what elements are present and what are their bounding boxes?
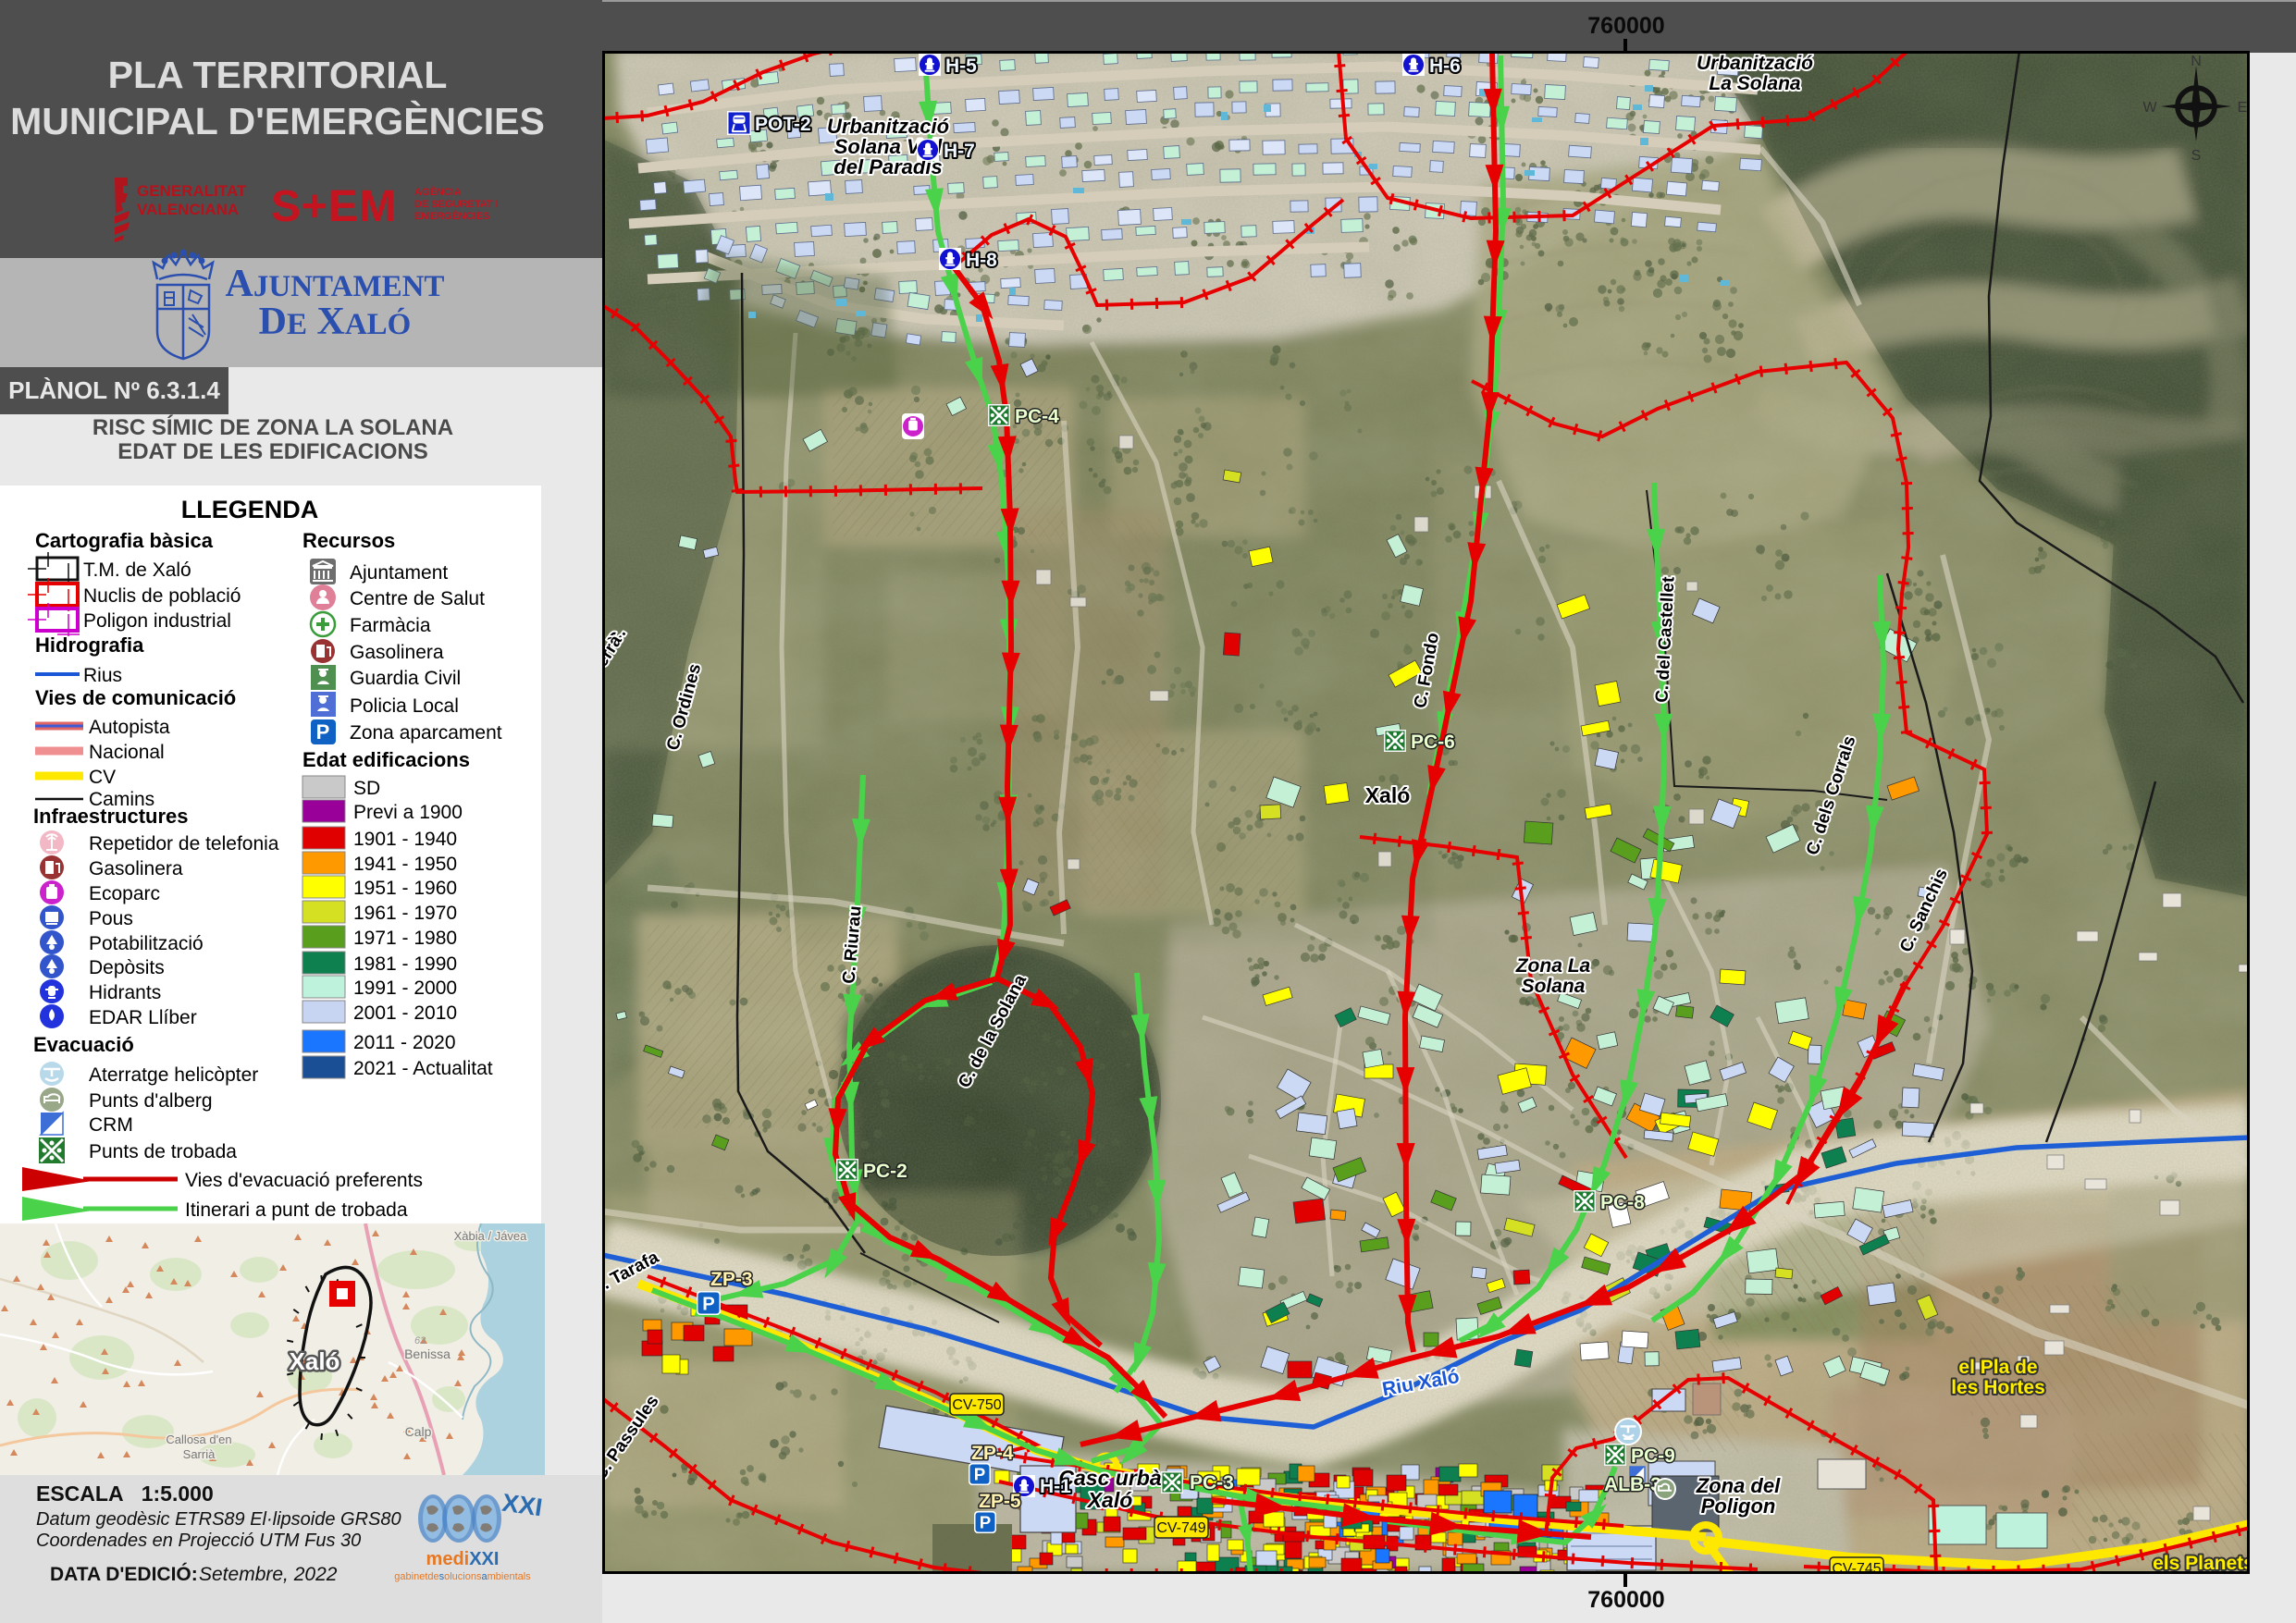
svg-text:H-7: H-7 xyxy=(944,141,975,162)
svg-text:POT-2: POT-2 xyxy=(755,114,811,135)
svg-text:Pous: Pous xyxy=(89,908,133,929)
svg-text:Xàbia / Jávea: Xàbia / Jávea xyxy=(454,1229,528,1243)
svg-text:1971 - 1980: 1971 - 1980 xyxy=(353,928,457,949)
svg-text:N: N xyxy=(2191,54,2202,69)
svg-text:Guardia Civil: Guardia Civil xyxy=(350,668,461,689)
svg-text:ALB-3: ALB-3 xyxy=(1604,1474,1661,1495)
svg-text:SD: SD xyxy=(353,778,380,799)
svg-text:Xaló: Xaló xyxy=(1086,1488,1133,1512)
svg-text:Itinerari a punt de trobada: Itinerari a punt de trobada xyxy=(185,1199,408,1221)
svg-text:Xaló: Xaló xyxy=(290,1347,340,1375)
svg-text:Xaló: Xaló xyxy=(1365,783,1411,807)
svg-text:P: P xyxy=(702,1294,715,1314)
svg-text:EDAR Llíber: EDAR Llíber xyxy=(89,1007,197,1028)
svg-text:1961 - 1970: 1961 - 1970 xyxy=(353,903,457,924)
svg-text:CV-749: CV-749 xyxy=(1156,1520,1205,1536)
svg-text:P: P xyxy=(980,1513,991,1532)
svg-text:La Solana: La Solana xyxy=(1709,73,1801,94)
svg-text:ZP-3: ZP-3 xyxy=(710,1269,753,1290)
svg-text:PC-4: PC-4 xyxy=(1015,406,1059,427)
svg-text:mediXXI: mediXXI xyxy=(426,1549,500,1569)
svg-text:E: E xyxy=(2238,100,2248,116)
svg-text:Vies de comunicació: Vies de comunicació xyxy=(35,686,236,709)
svg-text:Infraestructures: Infraestructures xyxy=(33,805,189,828)
svg-text:Solana: Solana xyxy=(1522,976,1586,997)
svg-text:Casc urbà: Casc urbà xyxy=(1058,1466,1161,1490)
svg-text:Ecoparc: Ecoparc xyxy=(89,883,160,904)
svg-text:Poligon: Poligon xyxy=(1701,1494,1776,1518)
svg-text:Gasolinera: Gasolinera xyxy=(89,858,183,879)
svg-text:63: 63 xyxy=(414,1335,426,1346)
svg-text:P: P xyxy=(974,1465,985,1484)
svg-text:2001 - 2010: 2001 - 2010 xyxy=(353,1002,457,1024)
svg-text:els Planets: els Planets xyxy=(2153,1553,2250,1574)
svg-text:1981 - 1990: 1981 - 1990 xyxy=(353,953,457,975)
svg-text:1941 - 1950: 1941 - 1950 xyxy=(353,854,457,875)
svg-text:Nacional: Nacional xyxy=(89,742,165,763)
svg-text:Farmàcia: Farmàcia xyxy=(350,615,431,636)
svg-text:Autopista: Autopista xyxy=(89,717,170,738)
svg-text:Punts de trobada: Punts de trobada xyxy=(89,1141,237,1162)
svg-text:S: S xyxy=(2191,148,2202,164)
svg-text:Callosa d'en: Callosa d'en xyxy=(166,1432,231,1446)
svg-text:H-1: H-1 xyxy=(1040,1476,1071,1497)
svg-text:H-8: H-8 xyxy=(966,250,997,271)
svg-text:2021 - Actualitat: 2021 - Actualitat xyxy=(353,1058,493,1079)
svg-text:Hidrografia: Hidrografia xyxy=(35,633,144,657)
svg-text:Recursos: Recursos xyxy=(302,529,395,552)
svg-text:Nuclis de població: Nuclis de població xyxy=(83,585,241,607)
svg-text:Previ a 1900: Previ a 1900 xyxy=(353,802,463,823)
svg-text:PC-2: PC-2 xyxy=(863,1161,907,1182)
svg-text:PC-9: PC-9 xyxy=(1631,1445,1675,1467)
svg-text:T.M. de Xaló: T.M. de Xaló xyxy=(83,559,191,581)
svg-text:gabinetdesolucionsambientals: gabinetdesolucionsambientals xyxy=(394,1571,531,1582)
svg-text:ZP-5: ZP-5 xyxy=(979,1491,1021,1512)
svg-text:Centre de Salut: Centre de Salut xyxy=(350,588,485,609)
svg-text:1951 - 1960: 1951 - 1960 xyxy=(353,878,457,899)
svg-text:Potabilització: Potabilització xyxy=(89,933,204,954)
svg-text:W: W xyxy=(2142,100,2157,116)
svg-text:2011 - 2020: 2011 - 2020 xyxy=(353,1032,456,1053)
svg-text:PC-6: PC-6 xyxy=(1411,732,1455,753)
svg-text:CV-750: CV-750 xyxy=(952,1397,1001,1413)
svg-text:Calp: Calp xyxy=(405,1424,432,1439)
svg-text:Edat edificacions: Edat edificacions xyxy=(302,748,470,771)
svg-text:Depòsits: Depòsits xyxy=(89,957,165,978)
svg-text:Ajuntament: Ajuntament xyxy=(350,562,448,584)
svg-text:Repetidor de telefonia: Repetidor de telefonia xyxy=(89,833,279,855)
svg-text:Aterratge helicòpter: Aterratge helicòpter xyxy=(89,1064,258,1086)
svg-text:Poligon industrial: Poligon industrial xyxy=(83,610,231,632)
svg-text:el Pla de: el Pla de xyxy=(1958,1357,2037,1378)
svg-text:Punts d'alberg: Punts d'alberg xyxy=(89,1090,213,1112)
svg-text:CRM: CRM xyxy=(89,1114,133,1136)
svg-text:ZP-4: ZP-4 xyxy=(971,1443,1014,1464)
svg-text:Sarrià: Sarrià xyxy=(183,1447,216,1461)
svg-text:P: P xyxy=(316,720,330,744)
svg-text:Rius: Rius xyxy=(83,665,122,686)
svg-text:CV: CV xyxy=(89,767,116,788)
svg-text:H-6: H-6 xyxy=(1429,55,1461,77)
svg-text:Urbanització: Urbanització xyxy=(1697,53,1813,74)
svg-text:Policia Local: Policia Local xyxy=(350,695,459,717)
svg-text:Hidrants: Hidrants xyxy=(89,982,161,1003)
svg-text:Cartografia bàsica: Cartografia bàsica xyxy=(35,529,214,552)
svg-text:VALENCIANA: VALENCIANA xyxy=(137,201,239,218)
svg-text:Gasolinera: Gasolinera xyxy=(350,642,444,663)
svg-text:PC-3: PC-3 xyxy=(1190,1472,1234,1494)
svg-text:1991 - 2000: 1991 - 2000 xyxy=(353,977,457,999)
svg-text:Vies d'evacuació preferents: Vies d'evacuació preferents xyxy=(185,1170,423,1191)
svg-text:XXI: XXI xyxy=(500,1489,544,1522)
svg-text:Benissa: Benissa xyxy=(404,1346,451,1361)
svg-text:Zona La: Zona La xyxy=(1515,955,1591,977)
svg-text:1901 - 1940: 1901 - 1940 xyxy=(353,829,457,850)
svg-text:H-5: H-5 xyxy=(945,55,977,77)
svg-text:Zona aparcament: Zona aparcament xyxy=(350,722,502,744)
svg-text:PC-8: PC-8 xyxy=(1600,1192,1645,1213)
svg-text:les Hortes: les Hortes xyxy=(1951,1377,2045,1398)
svg-text:GENERALITAT: GENERALITAT xyxy=(137,182,247,200)
svg-text:Evacuació: Evacuació xyxy=(33,1033,134,1056)
